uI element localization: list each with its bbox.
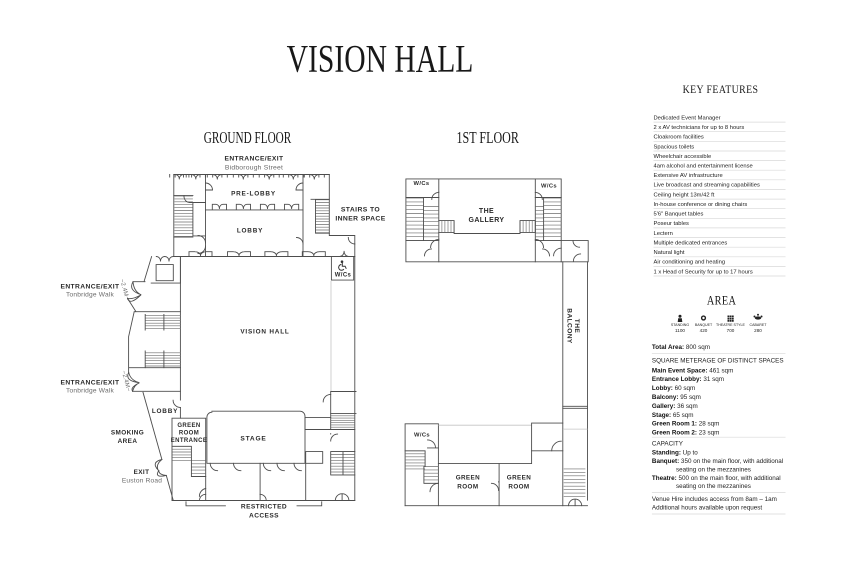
- svg-text:700: 700: [727, 328, 735, 333]
- svg-text:THEATRE STYLE: THEATRE STYLE: [716, 323, 745, 327]
- svg-text:280: 280: [754, 328, 762, 333]
- svg-text:W/Cs: W/Cs: [413, 181, 429, 187]
- svg-text:In-house conference or dining: In-house conference or dining chairs: [654, 202, 748, 208]
- svg-text:W/Cs: W/Cs: [541, 184, 557, 190]
- svg-text:ENTRANCE/EXIT: ENTRANCE/EXIT: [224, 156, 284, 163]
- svg-text:KEY FEATURES: KEY FEATURES: [683, 83, 759, 96]
- svg-text:Cloakroom facilities: Cloakroom facilities: [654, 135, 704, 141]
- svg-text:Lectern: Lectern: [654, 231, 673, 237]
- svg-text:1ST FLOOR: 1ST FLOOR: [457, 129, 520, 147]
- svg-text:Tonbridge Walk: Tonbridge Walk: [66, 292, 115, 299]
- svg-text:GROUND FLOOR: GROUND FLOOR: [204, 129, 292, 148]
- svg-text:RESTRICTED: RESTRICTED: [241, 504, 287, 511]
- svg-text:Green Room 2: 23 sqm: Green Room 2: 23 sqm: [652, 430, 720, 437]
- svg-text:Green Room 1: 28 sqm: Green Room 1: 28 sqm: [652, 421, 720, 428]
- svg-text:BALCONY: BALCONY: [565, 308, 572, 344]
- svg-text:VISION HALL: VISION HALL: [287, 36, 474, 80]
- svg-text:Theatre: 500 on the main floor: Theatre: 500 on the main floor, with add…: [652, 475, 781, 482]
- svg-text:seating on the mezzanines: seating on the mezzanines: [676, 467, 751, 474]
- svg-text:THE: THE: [573, 319, 580, 334]
- svg-text:Total Area: 800 sqm: Total Area: 800 sqm: [652, 344, 710, 351]
- svg-text:W/Cs: W/Cs: [414, 433, 430, 439]
- svg-text:Balcony: 95 sqm: Balcony: 95 sqm: [652, 394, 701, 401]
- svg-text:GREEN: GREEN: [456, 475, 480, 482]
- svg-text:STAIRS TO: STAIRS TO: [341, 207, 380, 214]
- svg-text:Extensive AV infrastructure: Extensive AV infrastructure: [654, 173, 723, 179]
- svg-text:CABARET: CABARET: [750, 323, 768, 327]
- svg-text:Lobby: 60 sqm: Lobby: 60 sqm: [652, 385, 695, 392]
- svg-text:ACCESS: ACCESS: [249, 513, 279, 520]
- svg-text:Bidborough Street: Bidborough Street: [225, 165, 283, 172]
- svg-text:ROOM: ROOM: [179, 431, 199, 437]
- svg-text:Euston Road: Euston Road: [122, 478, 162, 485]
- svg-text:Banquet: 350 on the main floor: Banquet: 350 on the main floor, with add…: [652, 458, 783, 465]
- svg-text:Air conditioning and heating: Air conditioning and heating: [654, 260, 726, 266]
- svg-text:ROOM: ROOM: [508, 484, 529, 491]
- svg-text:CAPACITY: CAPACITY: [652, 441, 684, 448]
- svg-text:SMOKING: SMOKING: [111, 430, 144, 437]
- svg-text:Main Event Space: 461 sqm: Main Event Space: 461 sqm: [652, 367, 734, 374]
- svg-text:Additional hours available upo: Additional hours available upon request: [652, 504, 763, 511]
- svg-text:Entrance Lobby: 31 sqm: Entrance Lobby: 31 sqm: [652, 376, 724, 383]
- svg-text:420: 420: [700, 328, 708, 333]
- svg-text:W/Cs: W/Cs: [335, 273, 352, 279]
- svg-text:LOBBY: LOBBY: [152, 408, 178, 415]
- svg-text:THE: THE: [479, 208, 494, 215]
- svg-text:5'6" Banquet tables: 5'6" Banquet tables: [654, 212, 704, 218]
- svg-text:Live broadcast and streaming c: Live broadcast and streaming capabilitie…: [654, 183, 760, 189]
- svg-text:GREEN: GREEN: [507, 475, 531, 482]
- svg-text:1100: 1100: [675, 328, 685, 333]
- svg-text:LOBBY: LOBBY: [237, 228, 263, 235]
- svg-text:ENTRANCE: ENTRANCE: [171, 438, 208, 444]
- svg-text:VISION HALL: VISION HALL: [240, 329, 289, 336]
- svg-text:seating on the mezzanines: seating on the mezzanines: [676, 483, 751, 490]
- svg-text:ENTRANCE/EXIT: ENTRANCE/EXIT: [60, 284, 120, 291]
- svg-text:ENTRANCE/EXIT: ENTRANCE/EXIT: [60, 380, 120, 387]
- svg-text:GALLERY: GALLERY: [469, 217, 505, 224]
- svg-text:GREEN: GREEN: [177, 423, 200, 429]
- svg-text:Wheelchair accessible: Wheelchair accessible: [654, 154, 712, 160]
- svg-text:Spacious toilets: Spacious toilets: [654, 144, 695, 150]
- svg-text:SQUARE METERAGE OF DISTINCT SP: SQUARE METERAGE OF DISTINCT SPACES: [652, 358, 784, 365]
- svg-text:Natural light: Natural light: [654, 250, 685, 256]
- svg-text:PRE-LOBBY: PRE-LOBBY: [231, 191, 276, 198]
- svg-text:EXIT: EXIT: [134, 469, 150, 476]
- svg-text:Dedicated Event Manager: Dedicated Event Manager: [654, 115, 721, 121]
- svg-text:AREA: AREA: [118, 438, 138, 445]
- svg-text:Venue Hire includes access fro: Venue Hire includes access from 8am – 1a…: [652, 496, 777, 503]
- svg-text:Multiple dedicated entrances: Multiple dedicated entrances: [654, 241, 728, 247]
- svg-text:2 x AV technicians for up to 8: 2 x AV technicians for up to 8 hours: [654, 125, 745, 131]
- svg-text:Poseur tables: Poseur tables: [654, 221, 690, 227]
- svg-text:Ceiling height 13m/42 ft: Ceiling height 13m/42 ft: [654, 192, 715, 198]
- svg-text:ROOM: ROOM: [457, 484, 478, 491]
- svg-text:BANQUET: BANQUET: [695, 323, 713, 327]
- svg-text:INNER SPACE: INNER SPACE: [335, 216, 385, 223]
- svg-text:STANDING: STANDING: [671, 323, 690, 327]
- svg-text:STAGE: STAGE: [240, 436, 266, 443]
- svg-text:Standing: Up to: Standing: Up to: [652, 449, 698, 456]
- svg-text:4am alcohol and entertainment: 4am alcohol and entertainment license: [654, 164, 753, 170]
- svg-text:AREA: AREA: [707, 295, 737, 308]
- svg-text:Tonbridge Walk: Tonbridge Walk: [66, 388, 115, 395]
- svg-text:1 x Head of Security for up to: 1 x Head of Security for up to 17 hours: [654, 269, 753, 275]
- svg-text:Stage: 65 sqm: Stage: 65 sqm: [652, 412, 694, 419]
- svg-text:Gallery: 36 sqm: Gallery: 36 sqm: [652, 403, 698, 410]
